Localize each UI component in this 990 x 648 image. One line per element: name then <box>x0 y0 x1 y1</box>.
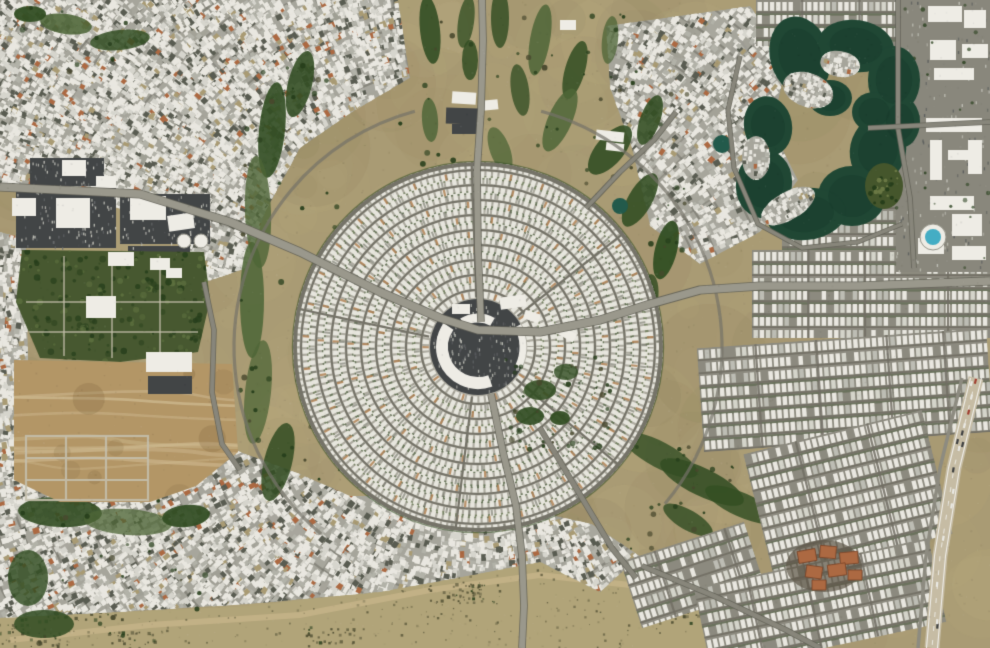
satellite-canvas <box>0 0 990 648</box>
aerial-satellite-photo <box>0 0 990 648</box>
